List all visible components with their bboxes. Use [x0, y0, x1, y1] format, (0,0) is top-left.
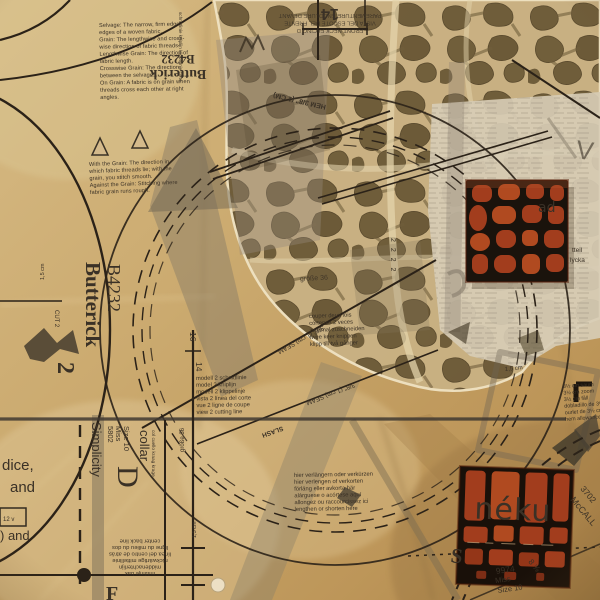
photo-vignette	[0, 0, 600, 600]
collage-artwork: V tteil lycka	[0, 0, 600, 600]
collage-canvas: V tteil lycka	[0, 0, 600, 600]
